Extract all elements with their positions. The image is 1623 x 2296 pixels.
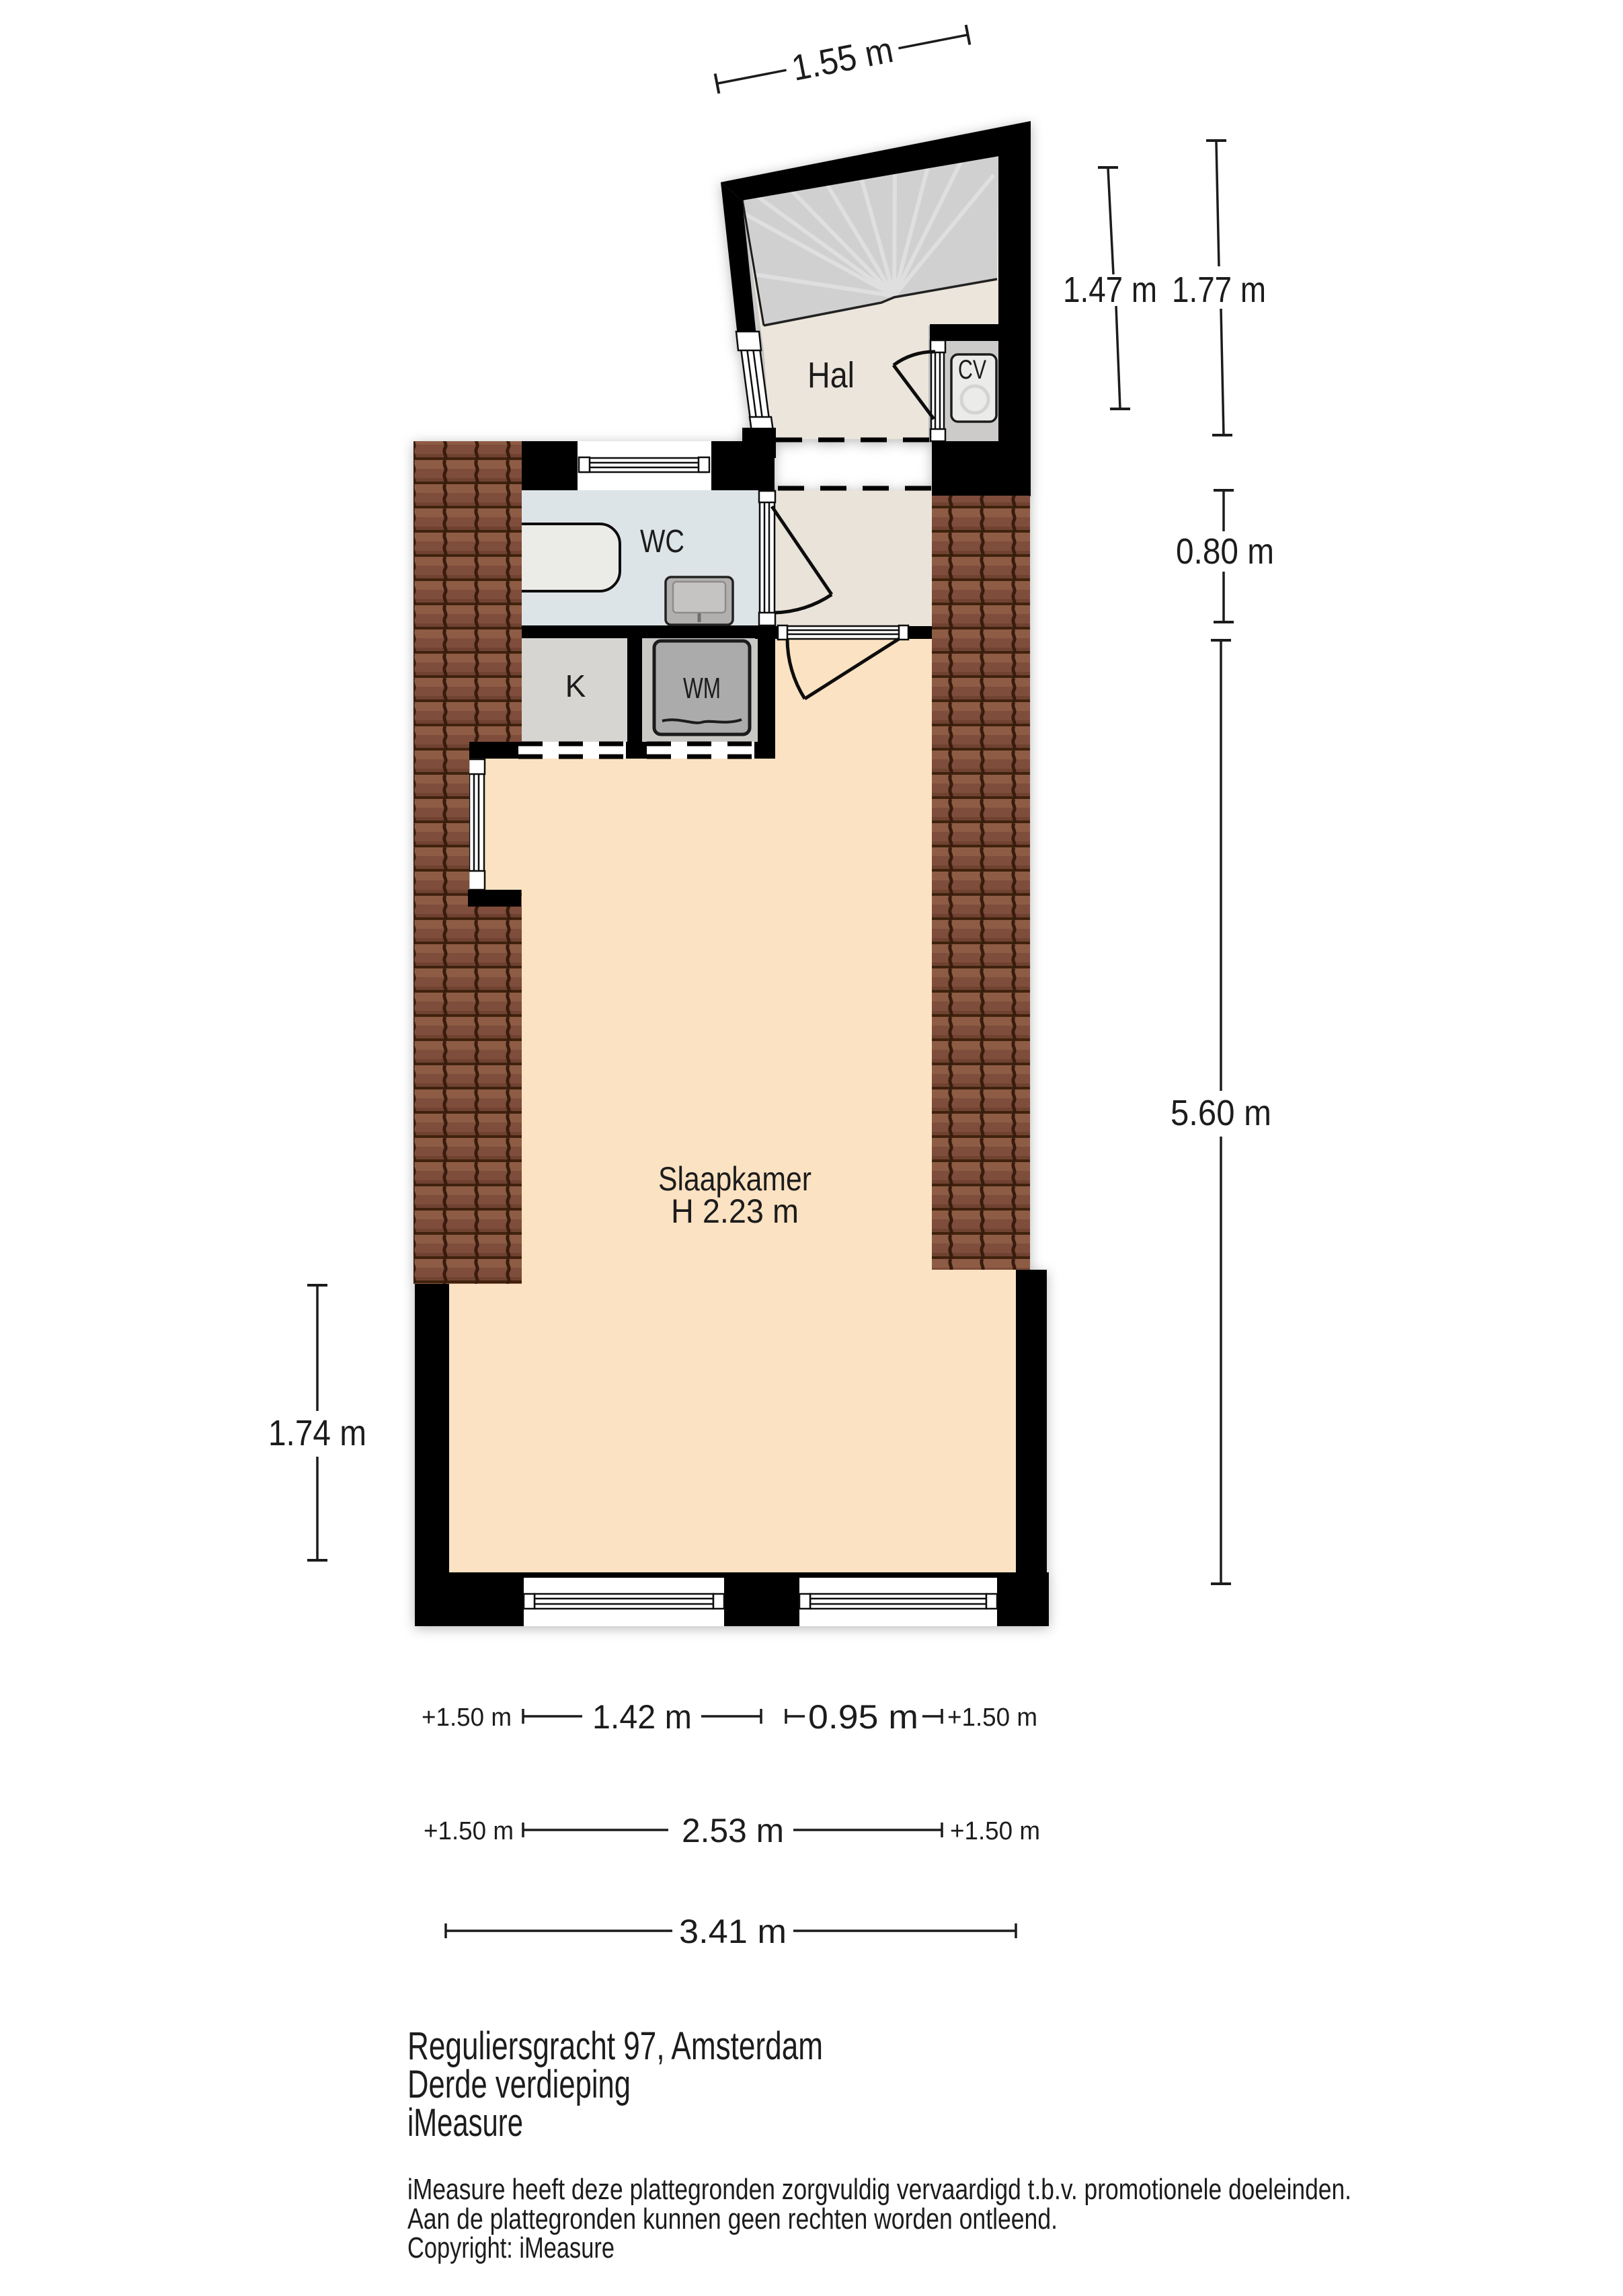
svg-text:+1.50 m: +1.50 m <box>422 1704 512 1732</box>
svg-text:0.95 m: 0.95 m <box>808 1698 918 1736</box>
svg-text:0.80 m: 0.80 m <box>1176 531 1274 572</box>
svg-text:H 2.23 m: H 2.23 m <box>671 1192 799 1230</box>
svg-text:iMeasure heeft deze plattegron: iMeasure heeft deze plattegronden zorgvu… <box>407 2173 1351 2206</box>
svg-text:Hal: Hal <box>807 355 855 395</box>
svg-text:iMeasure: iMeasure <box>407 2101 523 2145</box>
svg-text:1.74 m: 1.74 m <box>268 1413 366 1453</box>
svg-text:+1.50 m: +1.50 m <box>424 1817 514 1845</box>
svg-text:3.41 m: 3.41 m <box>679 1913 787 1950</box>
svg-text:5.60 m: 5.60 m <box>1171 1093 1271 1133</box>
svg-text:+1.50 m: +1.50 m <box>950 1817 1040 1845</box>
svg-text:Aan de plattegronden kunnen ge: Aan de plattegronden kunnen geen rechten… <box>407 2203 1058 2235</box>
svg-text:Reguliersgracht 97, Amsterdam: Reguliersgracht 97, Amsterdam <box>407 2024 823 2068</box>
svg-text:+1.50 m: +1.50 m <box>947 1704 1037 1732</box>
svg-text:1.77 m: 1.77 m <box>1172 270 1266 310</box>
svg-text:WM: WM <box>683 672 721 705</box>
svg-text:CV: CV <box>958 355 986 385</box>
svg-text:Derde verdieping: Derde verdieping <box>407 2063 631 2106</box>
svg-text:1.47 m: 1.47 m <box>1063 270 1157 310</box>
svg-text:2.53 m: 2.53 m <box>682 1812 784 1849</box>
svg-text:1.42 m: 1.42 m <box>592 1698 692 1736</box>
svg-text:K: K <box>565 668 586 703</box>
svg-text:Copyright: iMeasure: Copyright: iMeasure <box>407 2231 615 2264</box>
svg-text:WC: WC <box>640 524 684 560</box>
